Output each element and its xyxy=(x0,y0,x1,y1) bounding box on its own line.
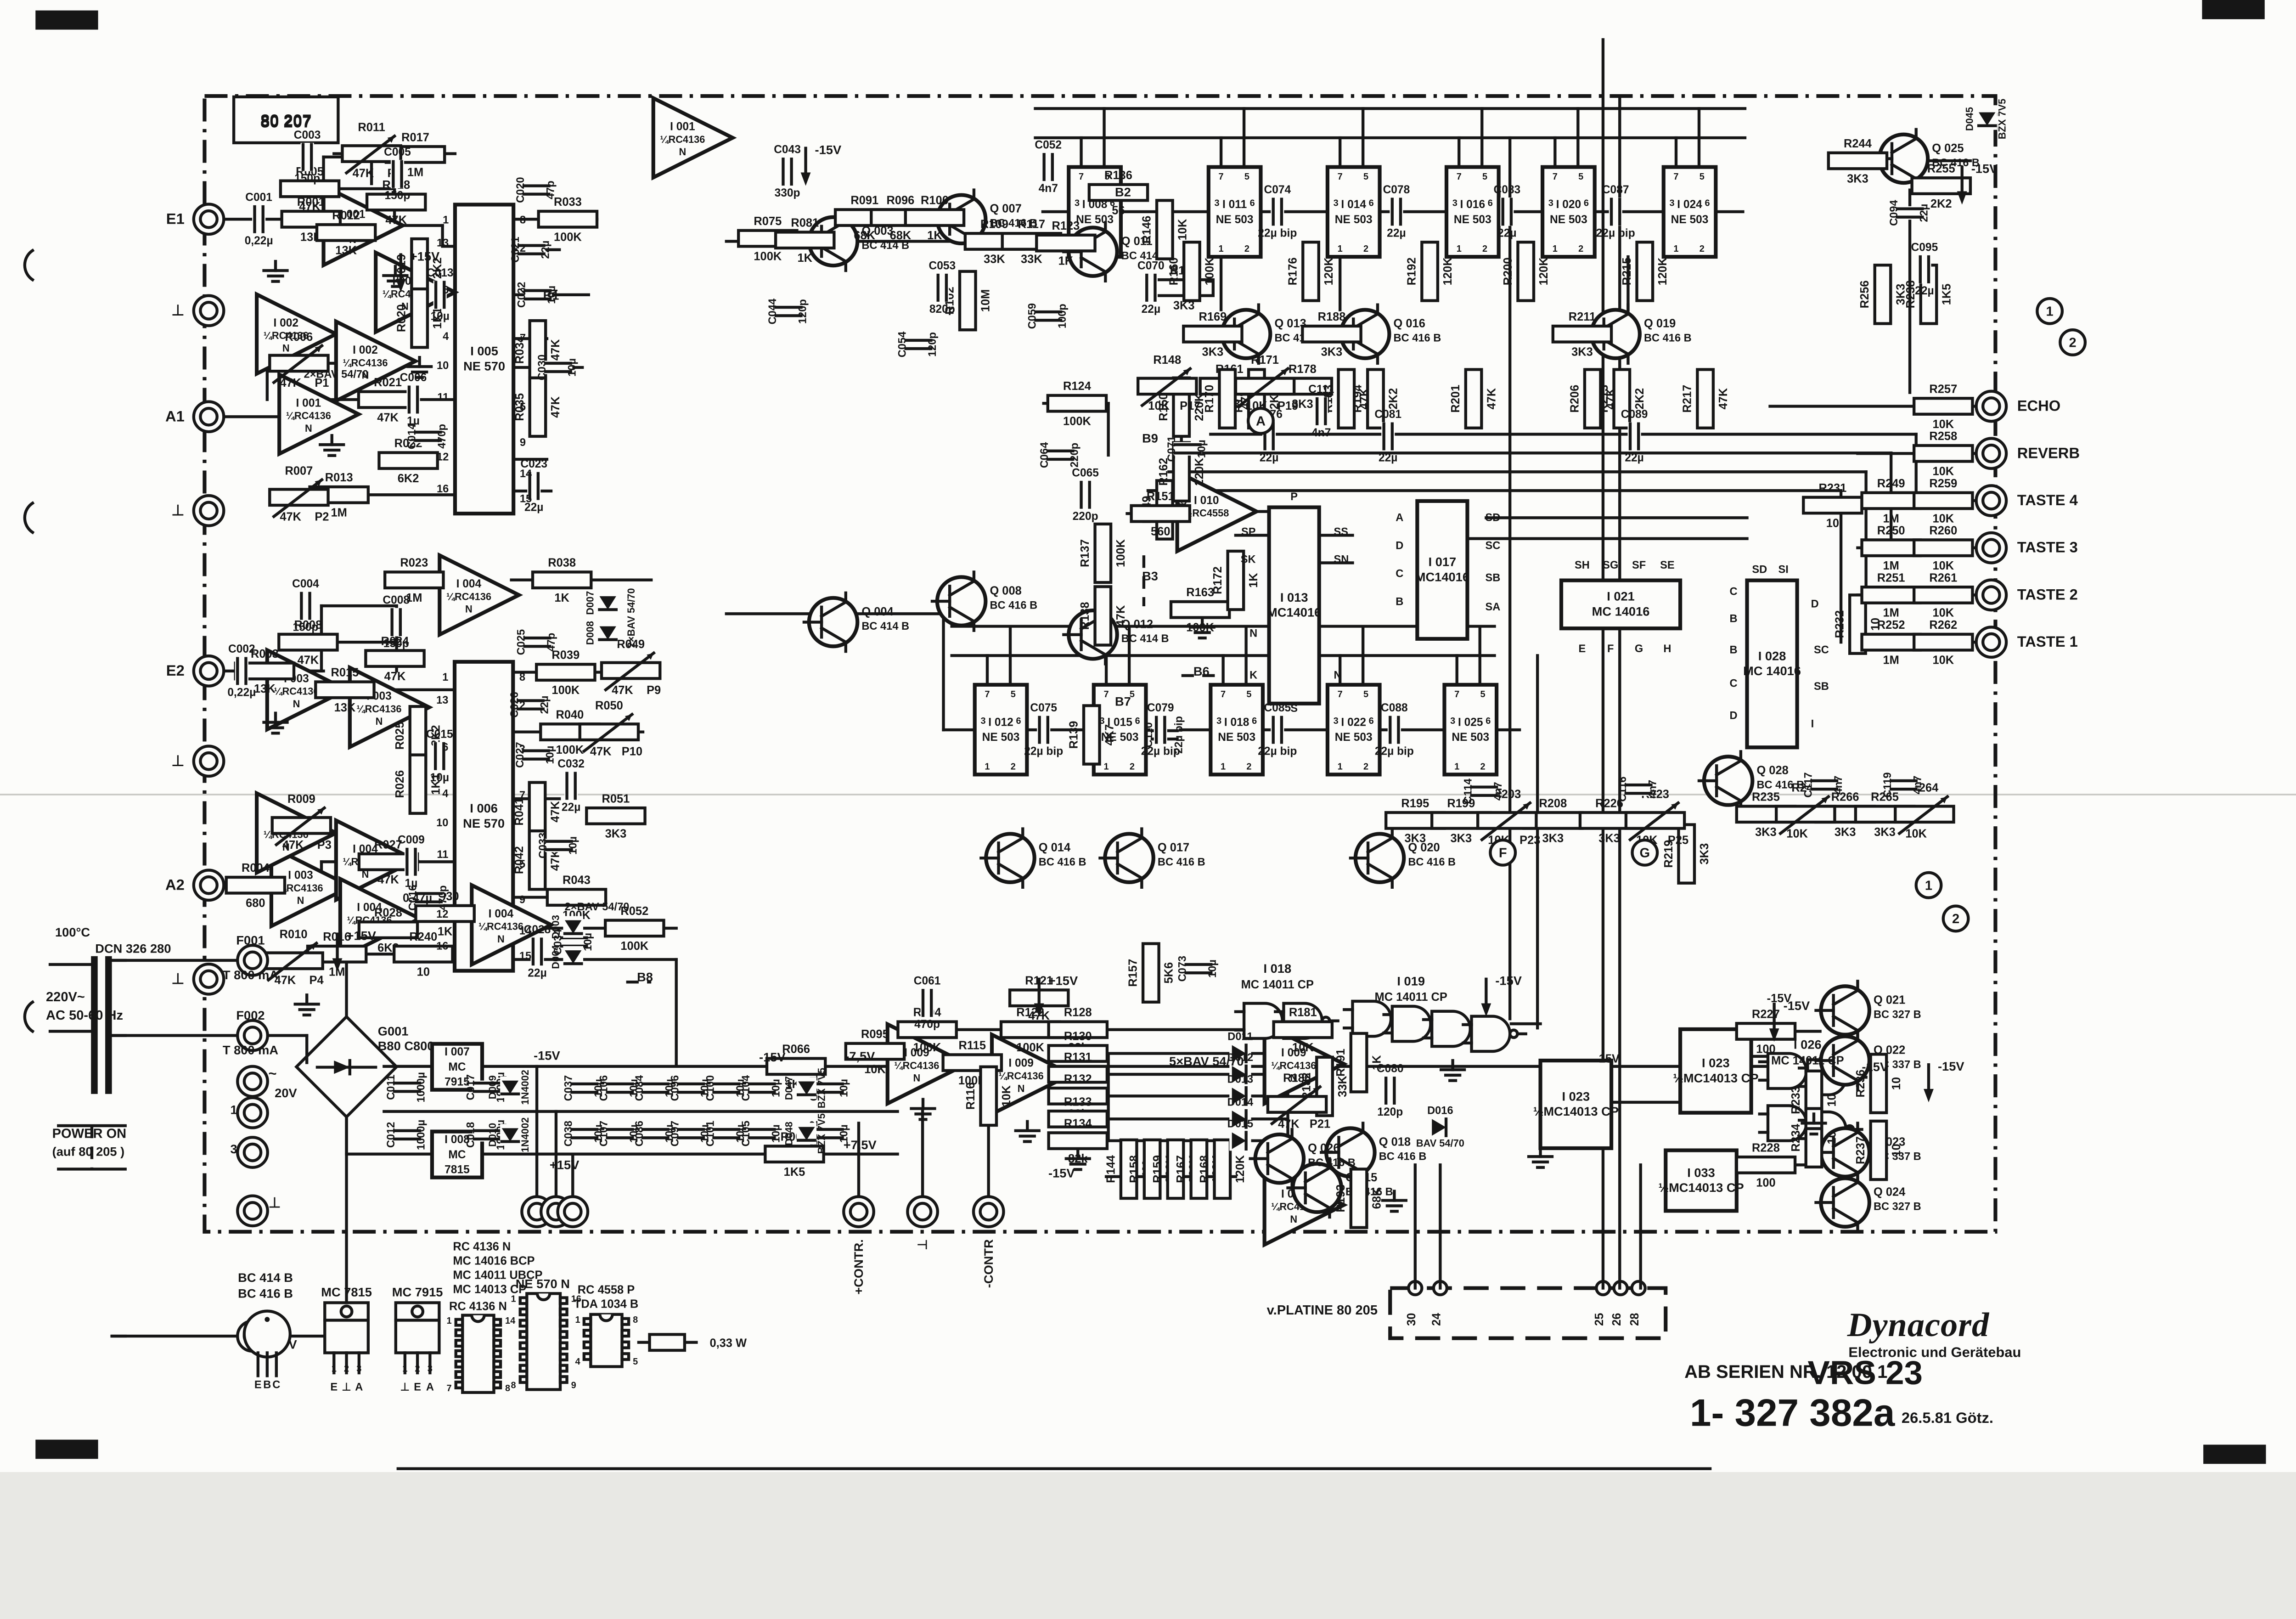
svg-text:R136: R136 xyxy=(1104,169,1132,182)
transistor-Q004: Q 004BC 414 B xyxy=(804,593,909,651)
svg-text:R095: R095 xyxy=(861,1028,889,1041)
svg-text:1: 1 xyxy=(1553,244,1558,254)
svg-text:3: 3 xyxy=(1216,716,1221,726)
svg-text:NE 503: NE 503 xyxy=(1452,731,1489,744)
svg-text:(auf 80 205 ): (auf 80 205 ) xyxy=(52,1144,125,1158)
svg-text:B80 C800: B80 C800 xyxy=(378,1038,434,1053)
svg-text:C008: C008 xyxy=(383,594,410,607)
svg-text:3: 3 xyxy=(1215,198,1220,209)
svg-text:47K: 47K xyxy=(385,214,407,226)
scan-edge-line xyxy=(397,1467,1712,1470)
svg-text:1: 1 xyxy=(1104,762,1109,772)
svg-text:2K2: 2K2 xyxy=(1387,388,1400,410)
svg-text:C119: C119 xyxy=(1882,772,1894,797)
resistor-R157: R1575K6 xyxy=(1126,944,1175,1002)
svg-text:22µ bip: 22µ bip xyxy=(1596,227,1635,239)
svg-text:C052: C052 xyxy=(1035,139,1062,152)
svg-text:3K3: 3K3 xyxy=(605,828,627,841)
svg-text:D003: D003 xyxy=(550,915,561,939)
svg-text:1: 1 xyxy=(231,1102,237,1117)
ic-I020: I 020NE 503753612 xyxy=(1542,167,1595,257)
svg-text:1: 1 xyxy=(402,1364,407,1374)
svg-text:6K2: 6K2 xyxy=(398,472,419,485)
svg-text:I 001: I 001 xyxy=(296,397,321,409)
svg-text:47K: 47K xyxy=(590,745,612,758)
svg-text:1: 1 xyxy=(1454,762,1459,772)
svg-text:R040: R040 xyxy=(556,709,584,722)
svg-text:R176: R176 xyxy=(1287,258,1300,286)
svg-text:C086: C086 xyxy=(634,1121,646,1146)
svg-text:R013: R013 xyxy=(325,471,353,484)
svg-text:BC 414 B: BC 414 B xyxy=(1121,633,1169,645)
svg-text:9: 9 xyxy=(519,894,525,906)
svg-text:22µ bip: 22µ bip xyxy=(1258,227,1297,239)
svg-text:10: 10 xyxy=(1826,517,1839,530)
svg-text:R228: R228 xyxy=(1752,1141,1780,1154)
svg-text:I 007: I 007 xyxy=(445,1046,470,1058)
svg-text:560: 560 xyxy=(1151,525,1170,538)
svg-text:I 004: I 004 xyxy=(489,908,514,920)
svg-text:R021: R021 xyxy=(374,376,402,389)
svg-text:R132: R132 xyxy=(1064,1072,1092,1085)
svg-text:NE 570: NE 570 xyxy=(463,816,505,830)
ic-I022: I 022NE 503753612 xyxy=(1328,685,1380,774)
circled-2: 2 xyxy=(1943,906,1969,931)
svg-text:16: 16 xyxy=(437,483,449,495)
svg-text:6: 6 xyxy=(1369,716,1374,726)
svg-text:R231: R231 xyxy=(1818,482,1846,495)
svg-text:R262: R262 xyxy=(1929,619,1957,632)
svg-text:N: N xyxy=(282,342,290,354)
svg-text:33K: 33K xyxy=(1021,253,1042,266)
svg-text:C020: C020 xyxy=(515,177,527,203)
svg-text:100K: 100K xyxy=(913,1041,941,1054)
svg-text:3K3: 3K3 xyxy=(1755,826,1777,839)
resistor-R102: R10210M xyxy=(943,271,992,330)
capacitor-C025: C02547p xyxy=(516,629,557,655)
svg-text:NE 503: NE 503 xyxy=(1076,214,1114,226)
svg-text:47K: 47K xyxy=(612,684,633,697)
svg-text:120K: 120K xyxy=(1441,257,1454,285)
svg-text:R011: R011 xyxy=(358,121,385,134)
svg-text:5K6: 5K6 xyxy=(1163,962,1176,984)
svg-text:100K: 100K xyxy=(551,684,580,697)
resistor-R038: R0381K xyxy=(533,557,591,604)
svg-text:BZX 7V5: BZX 7V5 xyxy=(816,1113,827,1154)
svg-text:22µ bip: 22µ bip xyxy=(1141,745,1180,758)
capacitor-C059: C059100p xyxy=(1026,303,1068,329)
svg-text:1000µ: 1000µ xyxy=(416,1072,428,1102)
svg-text:R020: R020 xyxy=(395,304,408,332)
svg-text:C044: C044 xyxy=(767,298,779,324)
svg-text:A: A xyxy=(1396,512,1403,524)
svg-text:D014: D014 xyxy=(1227,1096,1254,1108)
ground-symbol xyxy=(320,435,343,456)
capacitor-C014: C014470p xyxy=(406,423,448,449)
svg-text:MC 14011 CP: MC 14011 CP xyxy=(1771,1054,1844,1067)
svg-text:SB: SB xyxy=(1814,681,1829,693)
svg-text:N: N xyxy=(679,146,686,158)
svg-text:I 013: I 013 xyxy=(1280,590,1308,604)
svg-text:~: ~ xyxy=(269,1065,277,1081)
svg-text:MC: MC xyxy=(448,1149,466,1161)
svg-text:C061: C061 xyxy=(914,975,941,987)
ic-I023: I 023½MC14013 CP xyxy=(1533,1061,1619,1148)
supply-arrow--15V: -15V xyxy=(1924,1059,1964,1102)
connector-TASTE 4: TASTE 4 xyxy=(1976,485,2078,515)
svg-text:120K: 120K xyxy=(1537,257,1550,285)
svg-text:MC: MC xyxy=(448,1061,466,1073)
svg-text:R015: R015 xyxy=(331,666,359,679)
svg-text:1: 1 xyxy=(1338,244,1343,254)
svg-text:C015: C015 xyxy=(426,728,453,740)
svg-text:100K: 100K xyxy=(1114,539,1127,567)
svg-text:C101: C101 xyxy=(705,1121,717,1146)
svg-text:7: 7 xyxy=(1338,689,1343,699)
svg-text:I 014: I 014 xyxy=(1341,198,1366,211)
svg-text:F002: F002 xyxy=(236,1008,264,1022)
svg-text:100K: 100K xyxy=(620,940,648,953)
resistor-R051: R0513K3 xyxy=(586,792,645,840)
svg-text:D013: D013 xyxy=(1227,1073,1253,1085)
svg-text:4: 4 xyxy=(575,1357,580,1367)
svg-text:2: 2 xyxy=(1011,762,1016,772)
circled-2: 2 xyxy=(2060,330,2085,355)
svg-text:R066: R066 xyxy=(782,1043,810,1056)
capacitor-C061: C061470p xyxy=(914,975,941,1031)
svg-text:22µ: 22µ xyxy=(1142,303,1160,316)
svg-text:BZX 7V5: BZX 7V5 xyxy=(1996,99,2008,139)
svg-text:3: 3 xyxy=(356,1364,361,1374)
svg-text:R158: R158 xyxy=(1128,1155,1141,1183)
svg-text:8: 8 xyxy=(520,214,526,226)
svg-text:C104: C104 xyxy=(740,1075,752,1101)
svg-text:3K3: 3K3 xyxy=(1698,843,1711,865)
svg-text:R244: R244 xyxy=(1844,137,1872,150)
scanned-schematic-page: I 005NE 570I 006NE 570I 008NE 503753612I… xyxy=(0,0,2296,1472)
svg-text:N: N xyxy=(293,698,300,710)
svg-text:I 026: I 026 xyxy=(1794,1038,1822,1052)
svg-text:R025: R025 xyxy=(394,722,406,750)
svg-text:C012: C012 xyxy=(385,1122,397,1148)
svg-text:R257: R257 xyxy=(1929,383,1957,395)
svg-text:R213: R213 xyxy=(1598,385,1610,413)
svg-text:⊥: ⊥ xyxy=(171,301,185,318)
svg-text:SF: SF xyxy=(1632,559,1646,571)
circled-1: 1 xyxy=(2037,299,2062,324)
svg-text:I 025: I 025 xyxy=(1458,716,1483,728)
svg-text:I 021: I 021 xyxy=(1607,589,1635,604)
svg-text:8: 8 xyxy=(511,1381,516,1391)
svg-text:22µ: 22µ xyxy=(1625,452,1643,464)
svg-text:10K: 10K xyxy=(1932,512,1954,525)
svg-text:K: K xyxy=(1249,669,1257,681)
capacitor-C012: C0121000µ xyxy=(385,1120,427,1150)
svg-text:R043: R043 xyxy=(563,874,591,887)
svg-text:3K3: 3K3 xyxy=(1835,826,1856,839)
svg-text:3: 3 xyxy=(980,716,985,726)
svg-text:6: 6 xyxy=(1705,198,1710,209)
resistor-R256: R2563K3 xyxy=(1858,265,1907,323)
svg-text:¼RC4136: ¼RC4136 xyxy=(894,1060,939,1071)
capacitor-C105: C10510µ xyxy=(740,1121,782,1146)
svg-text:5: 5 xyxy=(1699,172,1705,182)
svg-text:2: 2 xyxy=(344,1364,349,1374)
svg-text:I 010: I 010 xyxy=(1194,494,1219,507)
svg-text:P9: P9 xyxy=(647,684,661,697)
svg-text:ECHO: ECHO xyxy=(2017,397,2061,414)
svg-text:330p: 330p xyxy=(775,187,800,199)
svg-text:R146: R146 xyxy=(1140,216,1153,244)
svg-text:120K: 120K xyxy=(1234,1155,1247,1183)
svg-text:BC 416 B: BC 416 B xyxy=(990,599,1037,611)
brand-logo: Dynacord xyxy=(1847,1306,1990,1344)
svg-text:2: 2 xyxy=(1952,912,1959,926)
svg-text:Q 014: Q 014 xyxy=(1039,841,1071,854)
svg-text:2K2: 2K2 xyxy=(1633,388,1646,410)
svg-text:I 001: I 001 xyxy=(670,121,695,133)
svg-text:2: 2 xyxy=(519,700,525,712)
connector-⊥: ⊥ xyxy=(171,964,224,994)
svg-text:13K: 13K xyxy=(334,701,356,714)
svg-text:1: 1 xyxy=(443,214,449,226)
svg-text:4n7: 4n7 xyxy=(1039,182,1058,195)
svg-text:¼RC4136: ¼RC4136 xyxy=(1271,1060,1316,1071)
svg-text:T 800 mA: T 800 mA xyxy=(223,1043,278,1057)
svg-text:C087: C087 xyxy=(1602,184,1629,196)
svg-text:C014: C014 xyxy=(406,423,418,449)
svg-text:C018: C018 xyxy=(465,1122,477,1148)
svg-text:4K7: 4K7 xyxy=(1103,724,1116,746)
svg-text:47K: 47K xyxy=(549,801,562,822)
svg-text:6: 6 xyxy=(1252,716,1257,726)
svg-text:13K: 13K xyxy=(335,244,357,257)
svg-text:⊥: ⊥ xyxy=(400,1381,410,1393)
svg-text:R075: R075 xyxy=(754,215,782,228)
svg-text:4n7: 4n7 xyxy=(1647,780,1659,799)
svg-text:R028: R028 xyxy=(374,906,402,919)
svg-text:BC 416 B: BC 416 B xyxy=(1408,857,1456,869)
svg-text:150p: 150p xyxy=(294,172,320,185)
connector-ECHO: ECHO xyxy=(1976,391,2061,421)
svg-text:D047: D047 xyxy=(783,1076,794,1100)
svg-text:C064: C064 xyxy=(1039,442,1051,468)
svg-text:C071: C071 xyxy=(1166,436,1178,462)
svg-text:C114: C114 xyxy=(1463,778,1474,804)
supply-arrow--15V: -15V xyxy=(1481,974,1522,1017)
svg-text:E: E xyxy=(330,1381,338,1393)
svg-text:I 012: I 012 xyxy=(988,716,1013,728)
package-legend: BC 414 BBC 416 BEBCMC 78151E2⊥3AMC 79151… xyxy=(238,1241,747,1393)
schematic-canvas: I 005NE 570I 006NE 570I 008NE 503753612I… xyxy=(0,0,2296,1472)
transistor-Q014: Q 014BC 416 B xyxy=(981,829,1086,887)
svg-text:1: 1 xyxy=(447,1316,452,1326)
svg-text:Q 007: Q 007 xyxy=(990,203,1021,215)
svg-text:3: 3 xyxy=(428,1364,433,1374)
svg-text:MC14016: MC14016 xyxy=(1267,605,1321,620)
svg-text:C078: C078 xyxy=(1383,184,1410,196)
svg-text:220K: 220K xyxy=(1193,457,1206,485)
svg-text:R178: R178 xyxy=(1289,363,1317,376)
svg-text:C088: C088 xyxy=(1381,702,1408,714)
svg-text:3: 3 xyxy=(1669,198,1674,209)
svg-text:MC 14016 BCP: MC 14016 BCP xyxy=(453,1255,535,1268)
svg-text:1K: 1K xyxy=(1058,254,1074,267)
svg-text:SS: SS xyxy=(1334,526,1349,538)
svg-text:4n7: 4n7 xyxy=(1311,427,1331,439)
capacitor-C044: C044120p xyxy=(767,298,809,324)
svg-text:MC 14016: MC 14016 xyxy=(1743,664,1801,678)
svg-text:R157: R157 xyxy=(1126,959,1139,987)
svg-text:MC 14016: MC 14016 xyxy=(1592,604,1650,618)
svg-text:C038: C038 xyxy=(563,1121,574,1146)
svg-text:1M: 1M xyxy=(407,166,423,179)
svg-text:R041: R041 xyxy=(513,798,526,826)
svg-text:C054: C054 xyxy=(897,331,909,357)
svg-text:MC 14011 CP: MC 14011 CP xyxy=(1375,991,1447,1004)
svg-text:220p: 220p xyxy=(1073,510,1098,523)
svg-text:F001: F001 xyxy=(236,933,264,947)
svg-text:R096: R096 xyxy=(887,194,915,207)
svg-text:10: 10 xyxy=(437,360,449,372)
capacitor-C023: C02322µ xyxy=(520,458,547,514)
transistor-Q024: Q 024BC 327 B xyxy=(1816,1173,1921,1232)
supply-arrow--15V: -15V xyxy=(1957,161,1998,204)
svg-text:2: 2 xyxy=(415,1364,420,1374)
svg-text:B: B xyxy=(1730,644,1738,656)
svg-text:C011: C011 xyxy=(385,1075,397,1100)
svg-text:R033: R033 xyxy=(554,196,582,209)
svg-text:7: 7 xyxy=(1457,172,1462,182)
svg-text:7: 7 xyxy=(1338,172,1343,182)
svg-text:S: S xyxy=(1290,703,1298,715)
svg-text:R137: R137 xyxy=(1079,539,1092,567)
punch-hole-mark xyxy=(25,503,33,532)
diode-D008: D008 xyxy=(585,621,618,645)
ground-symbol xyxy=(1016,1122,1039,1142)
svg-text:22µ bip: 22µ bip xyxy=(1258,745,1297,758)
svg-text:14: 14 xyxy=(520,468,532,480)
ic-I033: I 033½MC14013 CP xyxy=(1658,1151,1744,1211)
svg-text:MC 7915: MC 7915 xyxy=(392,1285,443,1299)
svg-text:R109: R109 xyxy=(980,218,1008,231)
svg-text:47K: 47K xyxy=(1114,605,1127,626)
circled-A: A xyxy=(1248,408,1273,434)
svg-text:68K: 68K xyxy=(854,229,875,242)
svg-text:10µ: 10µ xyxy=(770,1079,782,1097)
ic-I005: I 005NE 570 xyxy=(455,204,513,513)
svg-text:680: 680 xyxy=(246,897,265,910)
svg-text:C097: C097 xyxy=(669,1121,681,1146)
svg-text:47p: 47p xyxy=(545,181,557,199)
svg-text:80 207: 80 207 xyxy=(260,112,311,131)
svg-text:470p: 470p xyxy=(914,1018,940,1031)
svg-text:B7: B7 xyxy=(1115,694,1131,708)
svg-text:C025: C025 xyxy=(516,629,528,655)
svg-text:100K: 100K xyxy=(556,744,584,756)
svg-text:R006: R006 xyxy=(285,331,313,344)
svg-text:BC 327 B: BC 327 B xyxy=(1874,1201,1921,1213)
svg-text:1M: 1M xyxy=(1883,654,1899,666)
svg-text:10: 10 xyxy=(436,817,448,829)
svg-text:4: 4 xyxy=(443,331,449,343)
svg-text:R201: R201 xyxy=(1449,385,1462,413)
resistor-R217: R21747K xyxy=(1681,370,1730,428)
svg-text:47p: 47p xyxy=(546,633,557,652)
capacitor-C008: C008150p xyxy=(383,594,410,650)
svg-text:6: 6 xyxy=(1016,716,1021,726)
svg-text:5: 5 xyxy=(1482,172,1487,182)
svg-text:22µ: 22µ xyxy=(1915,285,1934,297)
svg-text:2: 2 xyxy=(2069,335,2077,350)
svg-text:R117: R117 xyxy=(1018,218,1045,231)
svg-text:A2: A2 xyxy=(165,876,185,893)
svg-text:C037: C037 xyxy=(563,1075,574,1101)
svg-text:MC 14011 CP: MC 14011 CP xyxy=(1241,978,1314,991)
svg-text:SG: SG xyxy=(1603,559,1618,571)
svg-text:3K3: 3K3 xyxy=(1847,172,1868,185)
svg-text:Q 004: Q 004 xyxy=(861,605,894,618)
svg-text:BC 416 B: BC 416 B xyxy=(238,1286,293,1300)
svg-text:Q 024: Q 024 xyxy=(1874,1186,1906,1199)
svg-text:1: 1 xyxy=(511,1294,516,1304)
date-author: 26.5.81 Götz. xyxy=(1902,1409,1993,1426)
svg-text:12: 12 xyxy=(437,451,449,463)
svg-text:TASTE 4: TASTE 4 xyxy=(2017,491,2078,508)
svg-text:100K: 100K xyxy=(1016,1041,1044,1054)
svg-text:R023: R023 xyxy=(400,557,428,570)
svg-text:R251: R251 xyxy=(1877,571,1905,584)
svg-text:Q 019: Q 019 xyxy=(1644,317,1676,330)
svg-text:C002: C002 xyxy=(228,643,255,655)
svg-text:10K: 10K xyxy=(864,1063,886,1076)
svg-text:10: 10 xyxy=(417,966,430,979)
svg-text:1M: 1M xyxy=(1883,512,1899,525)
svg-text:G001: G001 xyxy=(378,1024,409,1038)
svg-text:150p: 150p xyxy=(293,621,319,634)
svg-text:820p: 820p xyxy=(929,303,955,316)
svg-text:R169: R169 xyxy=(1199,310,1227,323)
model-name: VRS 23 xyxy=(1807,1354,1923,1392)
svg-text:R167: R167 xyxy=(1175,1155,1187,1183)
svg-text:R026: R026 xyxy=(394,770,406,798)
svg-text:C059: C059 xyxy=(1026,303,1038,329)
svg-text:R206: R206 xyxy=(1568,385,1581,413)
svg-text:E: E xyxy=(254,1379,262,1391)
svg-text:R237: R237 xyxy=(1854,1136,1867,1164)
svg-text:R010: R010 xyxy=(280,928,308,941)
svg-text:R195: R195 xyxy=(1401,797,1429,810)
svg-text:10K: 10K xyxy=(1786,828,1808,841)
svg-text:10µ: 10µ xyxy=(567,836,579,855)
svg-text:10K: 10K xyxy=(1176,219,1189,240)
svg-text:P4: P4 xyxy=(310,974,324,987)
svg-text:0,22µ: 0,22µ xyxy=(227,686,256,699)
connector-pin xyxy=(237,1196,267,1226)
ground-symbol xyxy=(1441,1061,1464,1081)
svg-text:I 017: I 017 xyxy=(1429,555,1457,569)
svg-text:R250: R250 xyxy=(1877,525,1905,537)
svg-text:3K3: 3K3 xyxy=(1571,346,1593,359)
svg-text:R194: R194 xyxy=(1351,384,1364,413)
svg-text:C110: C110 xyxy=(1143,722,1155,747)
diode-D003: D003 xyxy=(550,915,583,939)
resistor-R261: R26110K xyxy=(1914,571,1972,619)
svg-text:C: C xyxy=(1730,677,1738,689)
svg-text:13: 13 xyxy=(436,694,448,706)
svg-text:I 018: I 018 xyxy=(1224,716,1249,728)
svg-text:120p: 120p xyxy=(927,332,939,357)
